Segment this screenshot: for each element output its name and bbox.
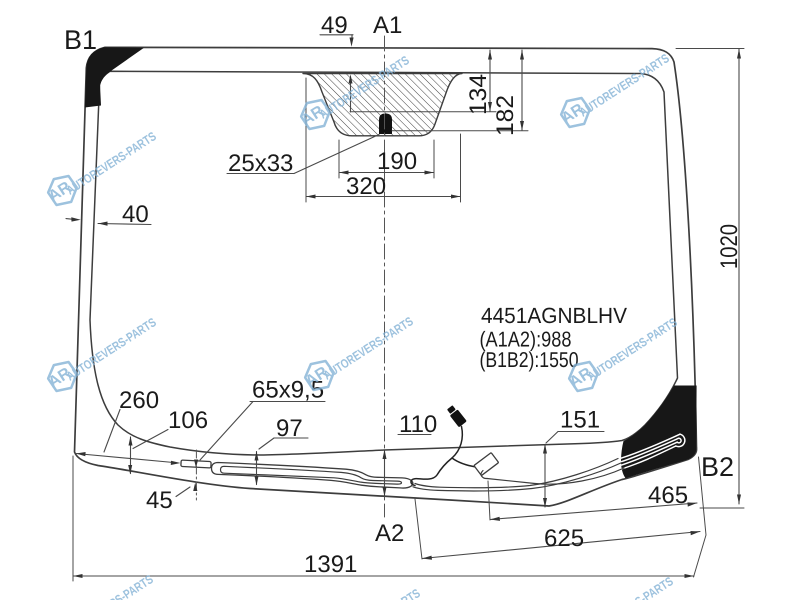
svg-text:B1: B1	[64, 25, 97, 55]
svg-text:151: 151	[560, 407, 600, 434]
svg-text:190: 190	[377, 148, 417, 175]
svg-text:B2: B2	[701, 452, 734, 482]
svg-text:106: 106	[168, 407, 208, 434]
svg-text:(B1B2):1550: (B1B2):1550	[480, 348, 579, 372]
svg-text:134: 134	[465, 74, 492, 115]
svg-text:1391: 1391	[304, 551, 357, 578]
svg-text:45: 45	[146, 487, 173, 514]
svg-text:A2: A2	[375, 520, 404, 547]
svg-text:182: 182	[492, 95, 519, 136]
svg-text:40: 40	[122, 201, 149, 228]
svg-text:4451AGNBLHV: 4451AGNBLHV	[481, 303, 627, 328]
svg-text:A1: A1	[373, 12, 402, 39]
svg-text:625: 625	[544, 525, 584, 552]
svg-text:465: 465	[648, 482, 688, 509]
svg-text:260: 260	[119, 387, 159, 414]
svg-text:1020: 1020	[716, 224, 743, 269]
svg-text:320: 320	[346, 173, 386, 200]
